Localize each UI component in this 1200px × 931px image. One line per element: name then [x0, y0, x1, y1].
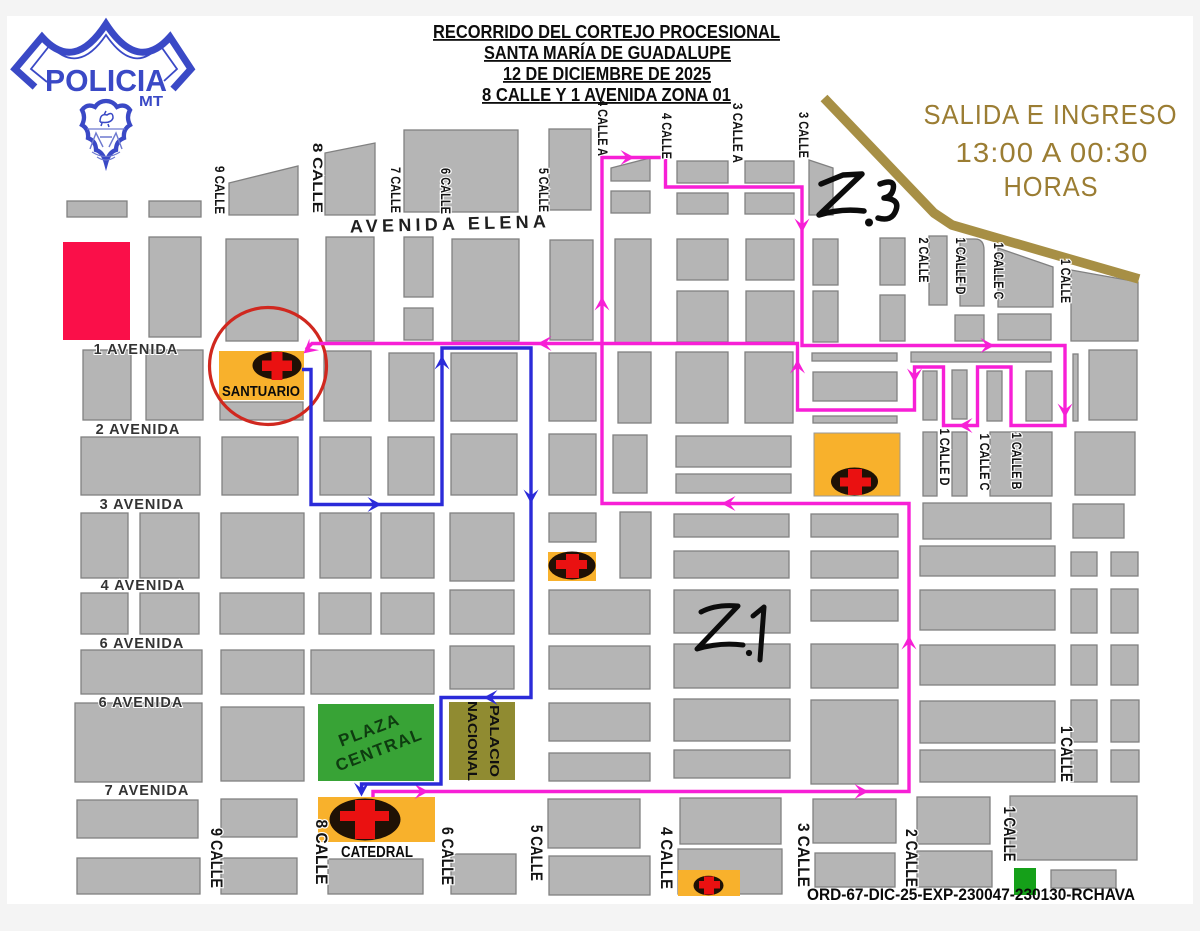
svg-text:PALACIO: PALACIO [487, 705, 502, 777]
svg-text:4 CALLE: 4 CALLE [657, 827, 675, 889]
svg-text:MT: MT [139, 93, 163, 110]
svg-text:8 CALLE: 8 CALLE [310, 143, 326, 213]
svg-text:NACIONAL: NACIONAL [465, 701, 480, 781]
svg-text:CATEDRAL: CATEDRAL [341, 844, 413, 861]
svg-text:7 CALLE: 7 CALLE [388, 167, 404, 213]
svg-text:HORAS: HORAS [1004, 171, 1099, 202]
svg-text:3 CALLE: 3 CALLE [794, 823, 812, 887]
svg-text:7 AVENIDA: 7 AVENIDA [105, 783, 190, 799]
svg-text:5 CALLE: 5 CALLE [536, 168, 552, 212]
svg-text:2 AVENIDA: 2 AVENIDA [96, 422, 181, 438]
svg-text:6 CALLE: 6 CALLE [438, 168, 454, 214]
svg-text:3 CALLE A: 3 CALLE A [730, 103, 746, 163]
svg-text:4 CALLE A: 4 CALLE A [595, 100, 611, 156]
svg-text:SANTUARIO: SANTUARIO [222, 383, 300, 400]
svg-text:5 CALLE: 5 CALLE [527, 825, 545, 881]
svg-text:8 CALLE Y 1 AVENIDA ZONA 01: 8 CALLE Y 1 AVENIDA ZONA 01 [482, 85, 731, 105]
svg-text:1 CALLE B: 1 CALLE B [1009, 433, 1025, 490]
svg-text:8 CALLE: 8 CALLE [312, 820, 330, 885]
svg-text:6 CALLE: 6 CALLE [438, 827, 456, 885]
svg-text:6 AVENIDA: 6 AVENIDA [99, 695, 184, 711]
svg-text:4 AVENIDA: 4 AVENIDA [101, 578, 186, 594]
svg-text:3 CALLE: 3 CALLE [796, 112, 812, 158]
svg-text:1 CALLE C: 1 CALLE C [991, 243, 1007, 300]
svg-text:3 AVENIDA: 3 AVENIDA [100, 497, 185, 513]
svg-text:2 CALLE: 2 CALLE [902, 829, 920, 887]
svg-text:RECORRIDO DEL CORTEJO PROCESIO: RECORRIDO DEL CORTEJO PROCESIONAL [433, 22, 780, 42]
svg-text:9 CALLE: 9 CALLE [212, 166, 228, 214]
svg-text:2 CALLE: 2 CALLE [916, 238, 932, 283]
svg-text:SANTA MARÍA DE GUADALUPE: SANTA MARÍA DE GUADALUPE [484, 42, 731, 63]
svg-text:SALIDA E INGRESO: SALIDA E INGRESO [924, 99, 1178, 130]
svg-text:1 CALLE D: 1 CALLE D [937, 429, 953, 486]
svg-text:13:00 A 00:30: 13:00 A 00:30 [956, 137, 1149, 168]
svg-text:ORD-67-DIC-25-EXP-230047-23013: ORD-67-DIC-25-EXP-230047-230130-RCHAVA [807, 885, 1135, 904]
svg-text:1 CALLE D: 1 CALLE D [953, 238, 969, 295]
svg-text:1 AVENIDA: 1 AVENIDA [94, 342, 179, 358]
svg-text:4 CALLE: 4 CALLE [659, 113, 675, 159]
svg-text:12 DE DICIEMBRE DE 2025: 12 DE DICIEMBRE DE 2025 [503, 64, 711, 84]
svg-text:1 CALLE: 1 CALLE [1057, 726, 1075, 782]
svg-text:1 CALLE: 1 CALLE [1058, 259, 1074, 303]
svg-text:1 CALLE: 1 CALLE [1000, 807, 1018, 862]
svg-text:9 CALLE: 9 CALLE [207, 828, 225, 888]
svg-text:6 AVENIDA: 6 AVENIDA [100, 636, 185, 652]
svg-text:1 CALLE C: 1 CALLE C [977, 434, 993, 491]
